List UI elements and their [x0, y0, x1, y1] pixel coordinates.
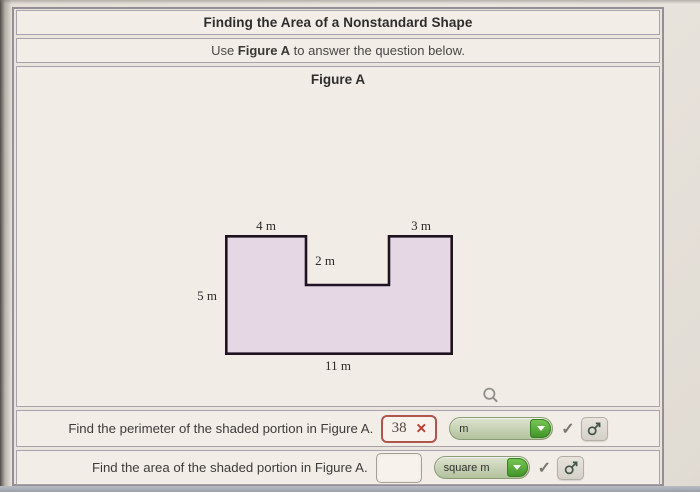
- page-title: Finding the Area of a Nonstandard Shape: [204, 15, 473, 30]
- dim-label-bottom: 11 m: [325, 358, 351, 374]
- retry-icon: [564, 461, 578, 475]
- perimeter-retry-button[interactable]: [581, 417, 608, 441]
- check-icon: ✓: [561, 419, 574, 439]
- figure-panel: Figure A 4 m 3 m 2 m 5 m 11 m: [16, 66, 660, 407]
- title-bar: Finding the Area of a Nonstandard Shape: [16, 10, 660, 35]
- nonstandard-shape: [225, 235, 453, 355]
- zoom-figure-button[interactable]: [480, 386, 502, 408]
- area-question-prompt: Find the area of the shaded portion in F…: [92, 460, 368, 475]
- instruction-suffix: to answer the question below.: [290, 43, 465, 58]
- question-row-area: Find the area of the shaded portion in F…: [16, 450, 660, 485]
- area-retry-button[interactable]: [557, 456, 584, 480]
- magnifier-icon: [481, 386, 501, 406]
- screenshot-root: Finding the Area of a Nonstandard Shape …: [0, 0, 700, 492]
- incorrect-x-icon: ✕: [416, 421, 427, 437]
- photo-edge-bottom: [0, 486, 700, 492]
- instruction-text: Use Figure A to answer the question belo…: [211, 43, 465, 58]
- instruction-figure-ref: Figure A: [238, 43, 290, 58]
- chevron-down-icon: [513, 465, 521, 470]
- dropdown-arrow-button[interactable]: [507, 458, 528, 477]
- perimeter-unit-dropdown[interactable]: m: [449, 417, 553, 440]
- check-icon: ✓: [538, 458, 551, 478]
- dim-label-notch-depth: 2 m: [315, 253, 335, 269]
- dim-label-top-left: 4 m: [256, 218, 276, 234]
- area-unit-selected: square m: [444, 462, 490, 474]
- perimeter-unit-selected: m: [459, 423, 468, 435]
- perimeter-answer-value: 38: [392, 420, 407, 437]
- dim-label-left-side: 5 m: [197, 288, 217, 304]
- area-unit-dropdown[interactable]: square m: [434, 456, 530, 479]
- figure-title: Figure A: [17, 72, 659, 87]
- photo-edge-left: [0, 0, 12, 492]
- perimeter-answer-input[interactable]: 38 ✕: [381, 415, 437, 443]
- retry-icon: [587, 422, 601, 436]
- perimeter-question-prompt: Find the perimeter of the shaded portion…: [68, 421, 373, 436]
- instruction-prefix: Use: [211, 43, 238, 58]
- photo-edge-top: [0, 0, 700, 4]
- instruction-bar: Use Figure A to answer the question belo…: [16, 38, 660, 63]
- dropdown-arrow-button[interactable]: [530, 419, 551, 438]
- question-row-perimeter: Find the perimeter of the shaded portion…: [16, 410, 660, 447]
- area-answer-input[interactable]: [376, 453, 422, 483]
- chevron-down-icon: [537, 426, 545, 431]
- dim-label-top-right: 3 m: [411, 218, 431, 234]
